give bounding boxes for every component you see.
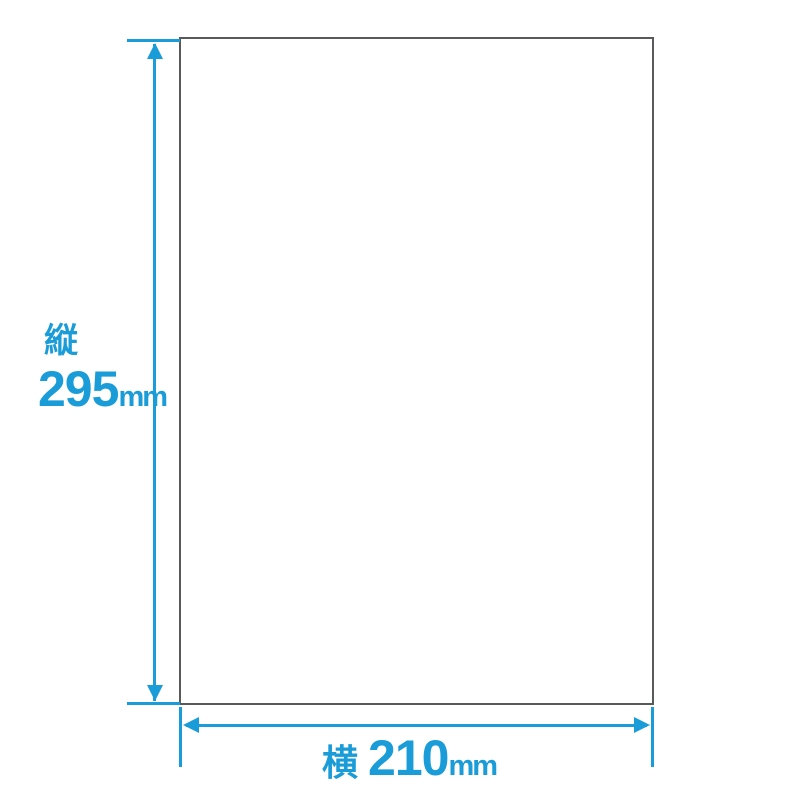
width-right-extension-line bbox=[651, 707, 654, 767]
width-axis-label: 横 bbox=[322, 745, 358, 781]
arrowhead-left-icon bbox=[183, 717, 199, 733]
paper-sheet bbox=[179, 37, 654, 705]
height-top-tick-line bbox=[127, 39, 180, 42]
arrowhead-up-icon bbox=[147, 43, 163, 59]
height-unit: mm bbox=[118, 383, 166, 412]
width-left-extension-line bbox=[179, 707, 182, 767]
diagram-canvas: 縦 295 mm 横 210 mm bbox=[0, 0, 800, 800]
width-dimension-line bbox=[186, 724, 647, 727]
height-dimension-label: 縦 295 mm bbox=[38, 324, 166, 414]
arrowhead-right-icon bbox=[634, 717, 650, 733]
height-bottom-tick-line bbox=[127, 702, 180, 705]
width-unit: mm bbox=[448, 752, 496, 781]
width-dimension-label: 横 210 mm bbox=[322, 733, 496, 783]
width-value: 210 bbox=[368, 733, 448, 783]
height-axis-label: 縦 bbox=[44, 324, 166, 358]
height-value: 295 bbox=[38, 364, 118, 414]
arrowhead-down-icon bbox=[147, 685, 163, 701]
